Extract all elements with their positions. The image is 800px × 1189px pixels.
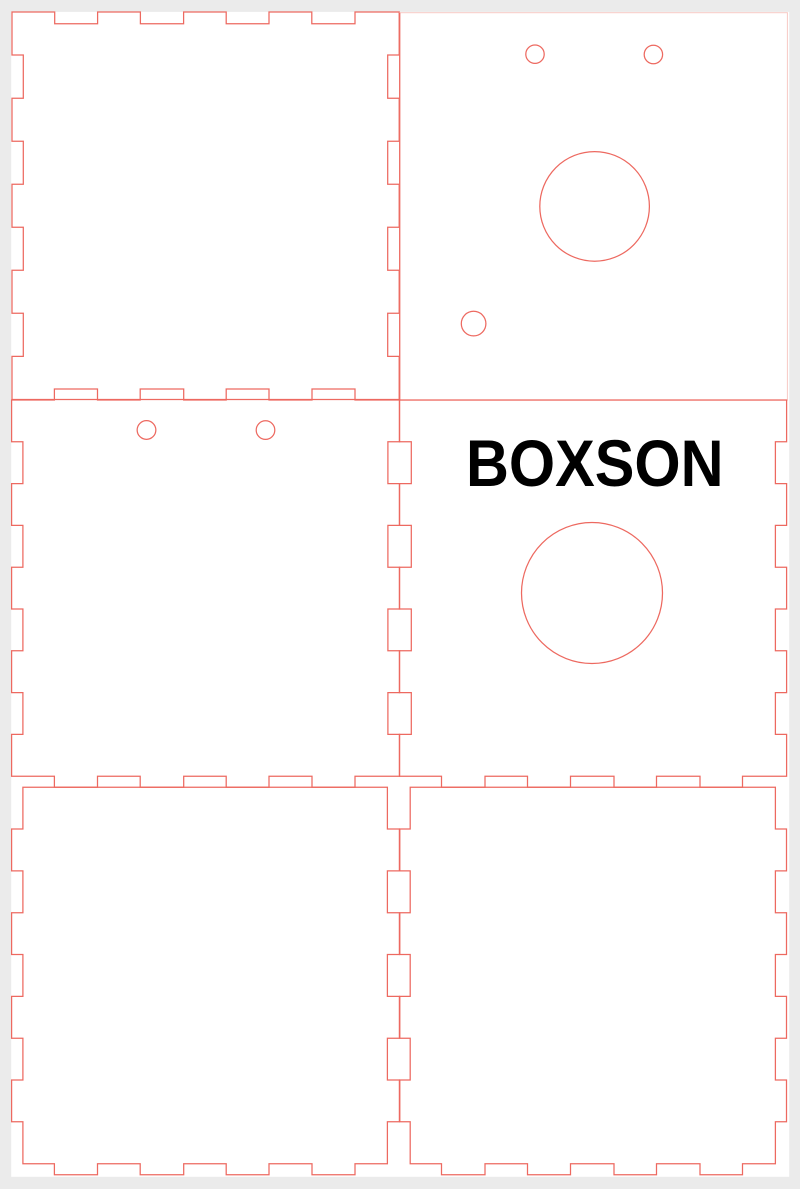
svg-text:BOXSON: BOXSON — [466, 426, 724, 500]
